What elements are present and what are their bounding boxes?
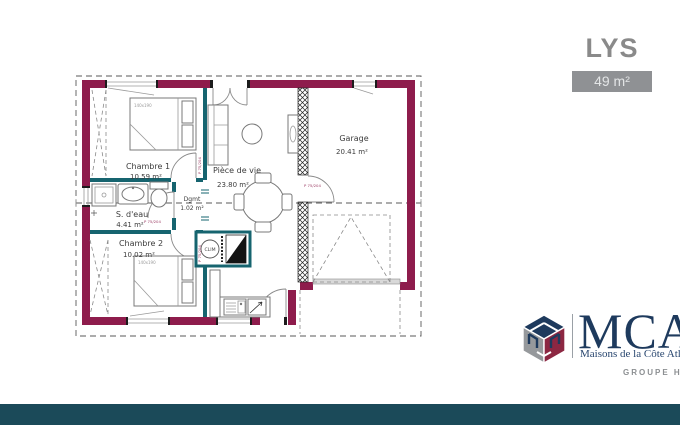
svg-text:Chambre 2: Chambre 2 [119,239,163,248]
room-label-garage: Garage 20.41 m² [336,134,369,156]
wardrobe-chambre1 [92,90,106,176]
logo-divider [572,314,573,358]
bed-icon-chambre1: 140x190 [130,98,196,150]
page: LYS 49 m² [0,0,680,425]
svg-text:4.41 m²: 4.41 m² [116,221,144,229]
room-label-dgmt: Dgmt 1.02 m² [180,196,204,212]
garage-door [313,215,400,284]
drain-mark [91,210,97,216]
clim-unit-icon: CLIM [201,240,219,258]
svg-text:P 75/204: P 75/204 [304,183,321,188]
svg-text:P 75/204: P 75/204 [197,245,202,262]
svg-text:140x190: 140x190 [134,103,152,108]
svg-text:Garage: Garage [339,134,368,143]
technical-closet: CLIM [196,232,250,266]
svg-text:Pièce de vie: Pièce de vie [213,165,261,175]
page-title: LYS [566,33,658,64]
sofa-icon [208,105,228,165]
svg-text:S. d'eau: S. d'eau [116,210,148,219]
coffee-table-icon [242,124,262,144]
svg-text:P 75/204: P 75/204 [197,157,202,174]
logo-group: GROUPE Hexaôm [623,368,680,377]
svg-text:23.80 m²: 23.80 m² [217,181,249,189]
shower-icon [92,184,116,206]
sink-icon [118,184,148,204]
svg-text:10.59 m²: 10.59 m² [130,173,162,181]
bottom-bar [0,404,680,425]
mca-cube-icon [521,314,567,364]
svg-text:140x190: 140x190 [138,260,156,265]
svg-text:P 75/204: P 75/204 [144,219,161,224]
svg-text:Dgmt: Dgmt [184,196,201,203]
area-badge: 49 m² [572,71,652,92]
svg-text:10.02 m²: 10.02 m² [123,251,155,259]
svg-text:CLIM: CLIM [204,247,215,253]
bed-icon-chambre2: 140x190 [134,256,196,306]
wardrobe-chambre2 [90,240,108,315]
stove-icon [248,299,266,315]
svg-text:1.02 m²: 1.02 m² [180,205,204,212]
toilet-icon [150,182,168,207]
floor-plan: 140x190 140x190 [70,70,430,345]
kitchen-counter [210,270,270,317]
tv-unit-icon [288,115,298,153]
water-heater-icon [222,235,246,263]
svg-text:20.41 m²: 20.41 m² [336,148,368,156]
svg-text:Chambre 1: Chambre 1 [126,162,170,171]
logo-tagline: Maisons de la Côte Atlantique [580,348,680,360]
kitchen-sink-icon [224,299,246,315]
